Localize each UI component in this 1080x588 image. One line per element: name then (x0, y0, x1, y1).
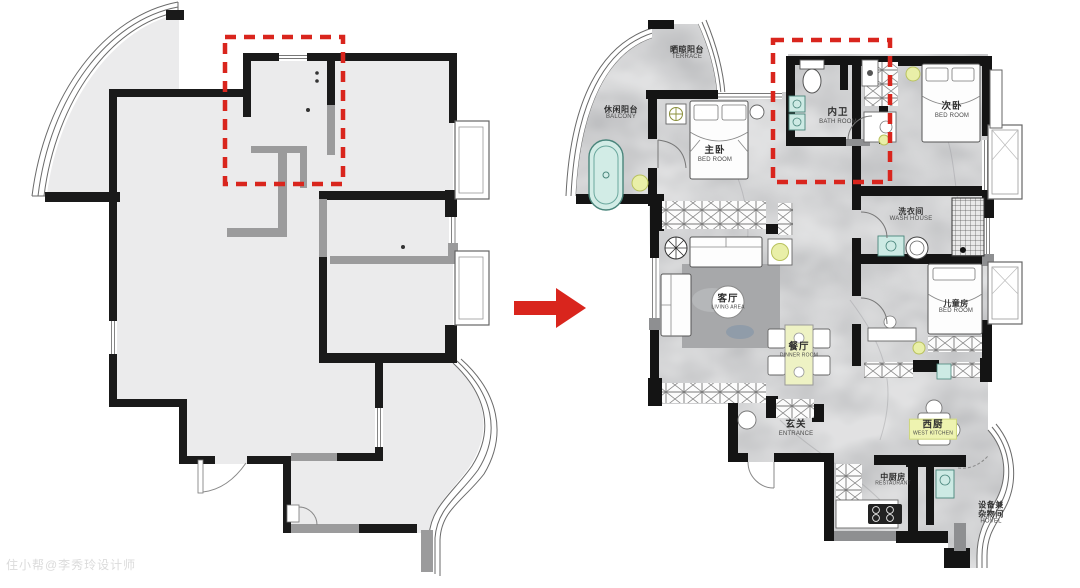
left-plan (32, 2, 497, 576)
watermark: 住小帮@李秀玲设计师 (6, 556, 136, 573)
right-bay-windows (988, 70, 1022, 324)
left-bay-windows (455, 121, 489, 325)
plans-graphic (0, 0, 1080, 588)
balcony-light (632, 175, 648, 191)
floorplan-comparison: 晒晾阳台 TERRACE 休闲阳台 BALCONY 主卧 BED ROOM 内卫… (0, 0, 1080, 588)
living-label-circle (712, 286, 744, 318)
transform-arrow-icon (514, 288, 586, 328)
bathtub (589, 140, 623, 210)
kitchen-fixtures (836, 500, 902, 528)
right-plan (560, 15, 1030, 580)
left-main-floor (113, 57, 483, 568)
